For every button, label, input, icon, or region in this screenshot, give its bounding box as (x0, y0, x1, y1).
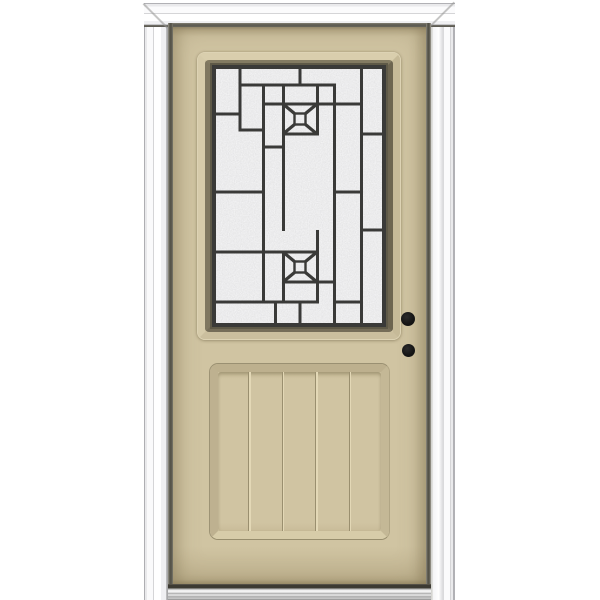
caming-segment-vertical (333, 85, 336, 324)
caming-segment-vertical (239, 68, 242, 131)
caming-segment-vertical (282, 252, 285, 303)
door-frame-right-casing (431, 3, 455, 600)
caming-segment-horizontal (214, 191, 265, 194)
lower-panel-planks (218, 372, 381, 531)
caming-segment-horizontal (214, 113, 242, 116)
caming-segment-horizontal (360, 229, 384, 232)
plank-groove (349, 372, 352, 531)
caming-segment-horizontal (360, 133, 384, 136)
caming-segment-horizontal (333, 301, 363, 304)
door-reveal-right (426, 23, 431, 585)
caming-segment-horizontal (214, 301, 319, 304)
caming-segment-vertical (274, 302, 277, 324)
plank-groove (248, 372, 251, 531)
caming-segment-horizontal (262, 103, 363, 106)
caming-segment-horizontal (239, 129, 266, 132)
caming-grid (212, 65, 386, 327)
plank-groove (282, 372, 285, 531)
caming-segment-horizontal (214, 251, 319, 254)
entry-door-product-photo (0, 0, 600, 600)
caming-segment-horizontal (333, 191, 363, 194)
plank-groove (315, 372, 318, 531)
caming-segment-horizontal (282, 281, 336, 284)
caming-segment-horizontal (239, 84, 337, 87)
decorative-glass-lite (212, 65, 386, 327)
caming-segment-vertical (360, 68, 363, 324)
aluminum-sill (168, 590, 431, 600)
caming-segment-vertical (316, 230, 319, 303)
door-frame-left-casing (144, 3, 168, 600)
caming-segment-vertical (262, 85, 265, 303)
caming-segment-vertical (299, 302, 302, 324)
caming-segment-horizontal (262, 146, 285, 149)
caming-segment-vertical (299, 68, 302, 86)
caming-segment-vertical (316, 85, 319, 135)
